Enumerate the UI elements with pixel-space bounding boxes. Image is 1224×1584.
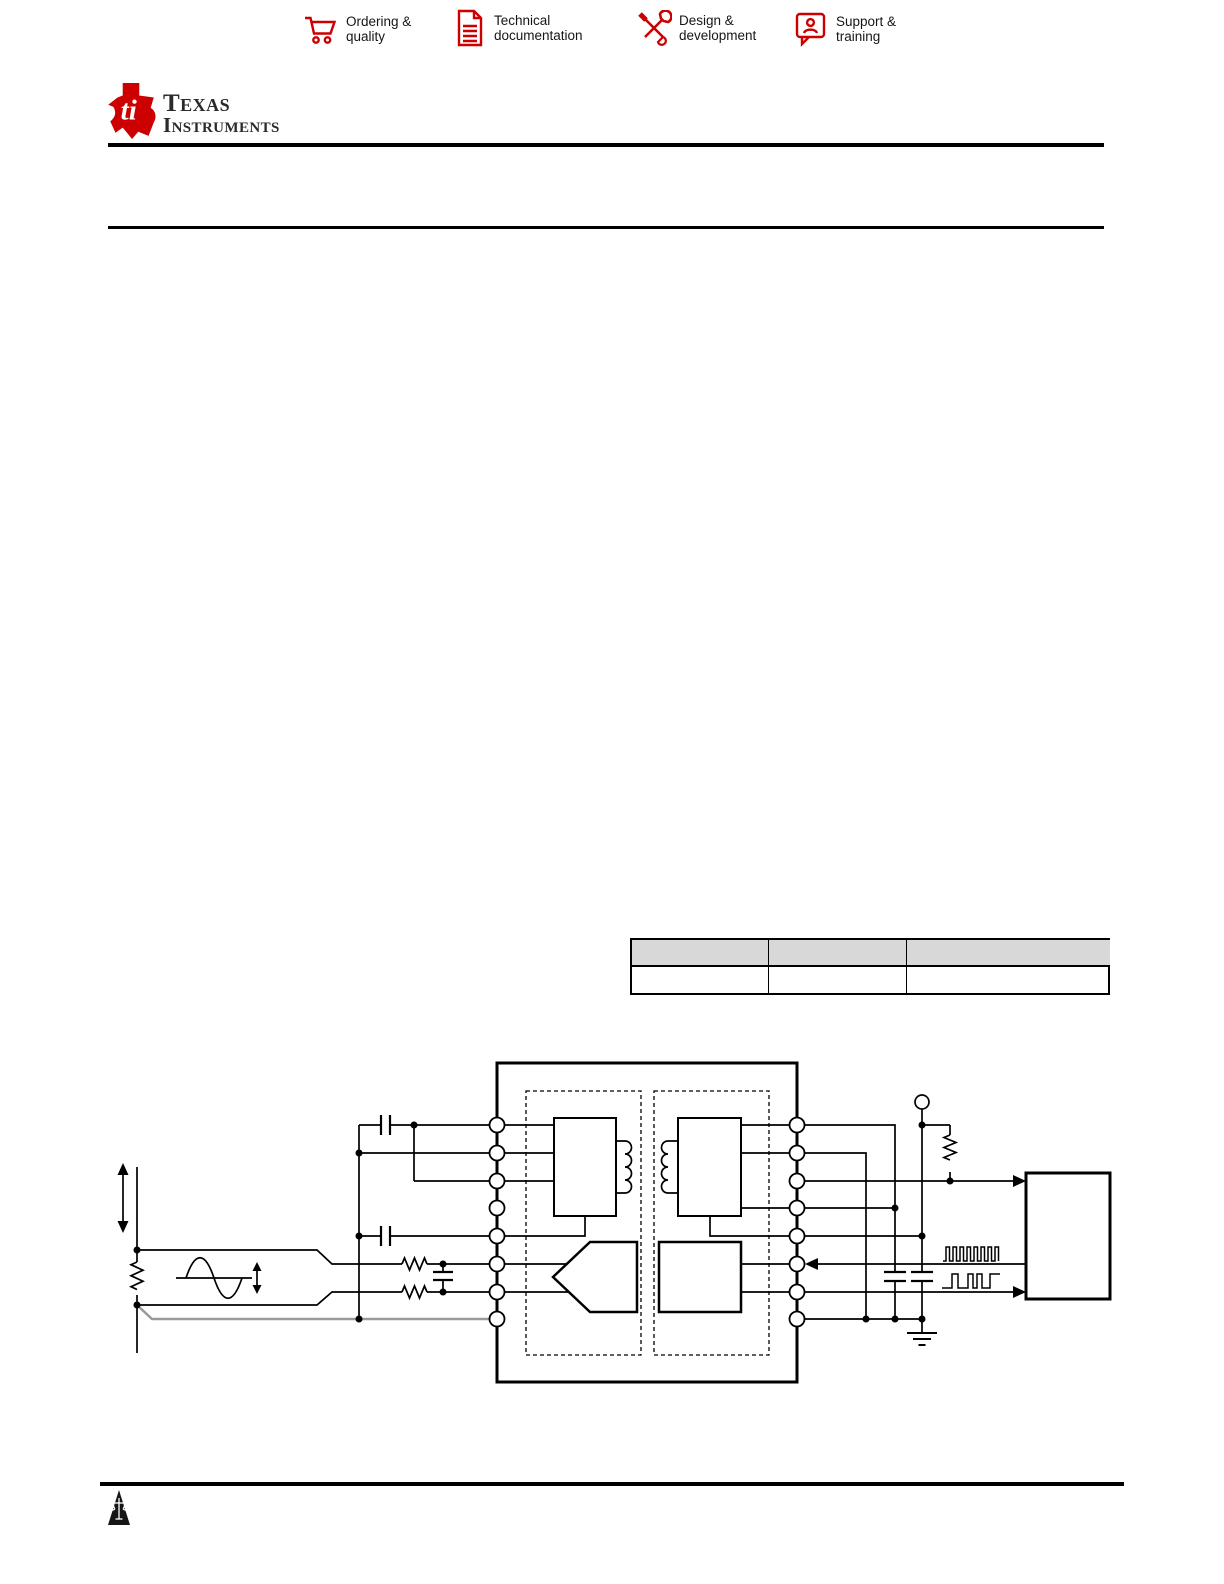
data-waveform-icon (942, 1274, 1000, 1288)
datasheet-page: { "nav": { "accent": "#cc0000", "items":… (0, 0, 1224, 1584)
shunt-resistor-icon (131, 1262, 143, 1290)
nav-label-line2: documentation (494, 28, 583, 44)
simplified-schematic (100, 1030, 1140, 1400)
nav-label-line1: Technical (494, 13, 583, 29)
transformer-coils-icon (616, 1141, 678, 1193)
internal-wires (497, 1125, 797, 1292)
nav-label-line1: Ordering & (346, 14, 411, 30)
arrow-right-icon (1013, 1286, 1026, 1298)
support-icon (793, 10, 829, 48)
modulator-block (553, 1242, 637, 1312)
logo-instruments: Instruments (163, 115, 280, 136)
input-filter-capacitor-icon (433, 1264, 453, 1292)
nav-label-line2: development (679, 28, 756, 44)
decoupling-capacitor-icon (381, 1115, 390, 1135)
device-information-table (630, 938, 1110, 995)
table-header-row (632, 940, 1108, 967)
nav-label-line2: training (836, 29, 896, 45)
table-cell (769, 967, 907, 993)
power-receiver-block (554, 1118, 616, 1216)
sense-line (131, 1167, 143, 1353)
scales-warning-icon (107, 1489, 131, 1526)
line-voltage-double-arrow (118, 1163, 129, 1233)
header-rule-bottom (108, 226, 1104, 229)
clock-waveform-icon (943, 1247, 999, 1261)
isolated-modulator-ic (497, 1063, 797, 1382)
supply-terminal-icon (915, 1095, 929, 1109)
ti-bug-icon: ti (106, 82, 156, 140)
cart-icon (303, 10, 339, 48)
mcu-block (1026, 1173, 1110, 1299)
nav-ordering-quality[interactable]: Ordering & quality (303, 10, 411, 48)
ic-pins (490, 1118, 805, 1327)
pullup-resistor-icon (944, 1135, 956, 1160)
svg-text:ti: ti (121, 94, 137, 126)
input-resistor-icon (402, 1258, 427, 1270)
low-side-network (797, 1095, 1026, 1345)
decoupling-capacitor-icon (381, 1226, 390, 1246)
nav-support-training[interactable]: Support & training (793, 10, 896, 48)
nav-technical-documentation[interactable]: Technical documentation (453, 8, 583, 48)
input-resistor-icon (402, 1286, 427, 1298)
digital-interface-block (659, 1242, 741, 1312)
arrow-right-icon (1013, 1175, 1026, 1187)
table-cell (632, 967, 769, 993)
ac-source-sine-icon (176, 1258, 262, 1299)
footer-rule (100, 1482, 1124, 1486)
tools-icon (636, 10, 672, 46)
table-row (632, 967, 1108, 993)
document-icon (453, 8, 487, 48)
logo-texas: Texas (163, 92, 280, 115)
table-header-cell (907, 940, 1110, 967)
power-transmitter-block (678, 1118, 741, 1216)
header-rule-top (108, 143, 1104, 147)
nav-label-line1: Design & (679, 13, 756, 29)
ground-icon (907, 1319, 937, 1345)
ti-logo[interactable]: ti Texas Instruments (106, 82, 280, 140)
high-side-supply-bus (359, 1115, 497, 1319)
table-header-cell (769, 940, 907, 967)
shield-wire (137, 1305, 489, 1319)
nav-design-development[interactable]: Design & development (636, 10, 756, 46)
table-header-cell (632, 940, 769, 967)
decoupling-capacitor-icon (884, 1272, 933, 1281)
nav-label-line2: quality (346, 29, 411, 45)
nav-label-line1: Support & (836, 14, 896, 30)
arrow-left-icon (805, 1258, 818, 1270)
table-cell (907, 967, 1110, 993)
